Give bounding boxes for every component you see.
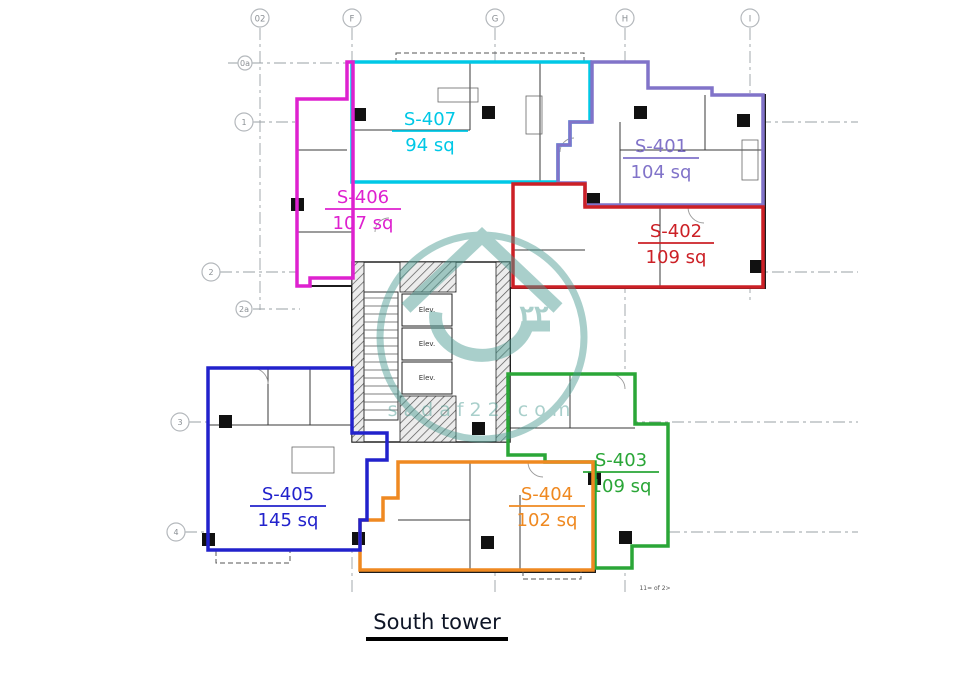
grid-bubble-label: F — [350, 15, 355, 25]
unit-area-s406: 107 sq — [333, 213, 394, 234]
grid-bubble-label: H — [622, 15, 628, 25]
unit-area-s404: 102 sq — [517, 510, 578, 531]
unit-name-s403: S-403 — [595, 450, 647, 471]
title-underline — [366, 637, 508, 641]
watermark-arabic-number: ٢٢ — [519, 300, 549, 328]
unit-area-s407: 94 sq — [405, 135, 454, 156]
column — [482, 106, 495, 119]
grid-bubble-label: 3 — [177, 418, 182, 427]
unit-area-s402: 109 sq — [646, 247, 707, 268]
grid-bubble-label: 4 — [173, 528, 178, 537]
unit-name-s405: S-405 — [262, 484, 314, 505]
column — [634, 106, 647, 119]
unit-name-s407: S-407 — [404, 109, 456, 130]
grid-bubble-label: 2 — [208, 268, 213, 277]
grid-bubble-label: 2a — [239, 305, 249, 314]
unit-name-s402: S-402 — [650, 221, 702, 242]
elevator-label: Elev. — [419, 374, 436, 382]
column — [472, 422, 485, 435]
unit-name-s404: S-404 — [521, 484, 573, 505]
column — [619, 531, 632, 544]
floorplan-drawing: 02FGHI0a122a34 — [0, 0, 971, 675]
unit-area-s403: 109 sq — [591, 476, 652, 497]
unit-area-s401: 104 sq — [631, 162, 692, 183]
column — [750, 260, 763, 273]
unit-name-s401: S-401 — [635, 136, 687, 157]
column — [737, 114, 750, 127]
watermark-domain-text: sadaf22.com — [388, 399, 577, 421]
column — [353, 108, 366, 121]
floorplan-page: 02FGHI0a122a34 — [0, 0, 971, 675]
unit-name-s406: S-406 — [337, 187, 389, 208]
column — [481, 536, 494, 549]
unit-area-s405: 145 sq — [258, 510, 319, 531]
grid-bubble-label: 1 — [241, 118, 246, 127]
grid-bubble-label: I — [749, 15, 752, 25]
grid-bubble-label: G — [492, 15, 499, 25]
title-block: South tower — [366, 610, 508, 641]
sheet-note: 11= of 2> — [639, 585, 670, 592]
grid-bubble-label: 0a — [240, 59, 250, 68]
grid-bubble-label: 02 — [255, 15, 266, 25]
page-title: South tower — [373, 610, 501, 634]
elevator-label: Elev. — [419, 340, 436, 348]
column — [219, 415, 232, 428]
